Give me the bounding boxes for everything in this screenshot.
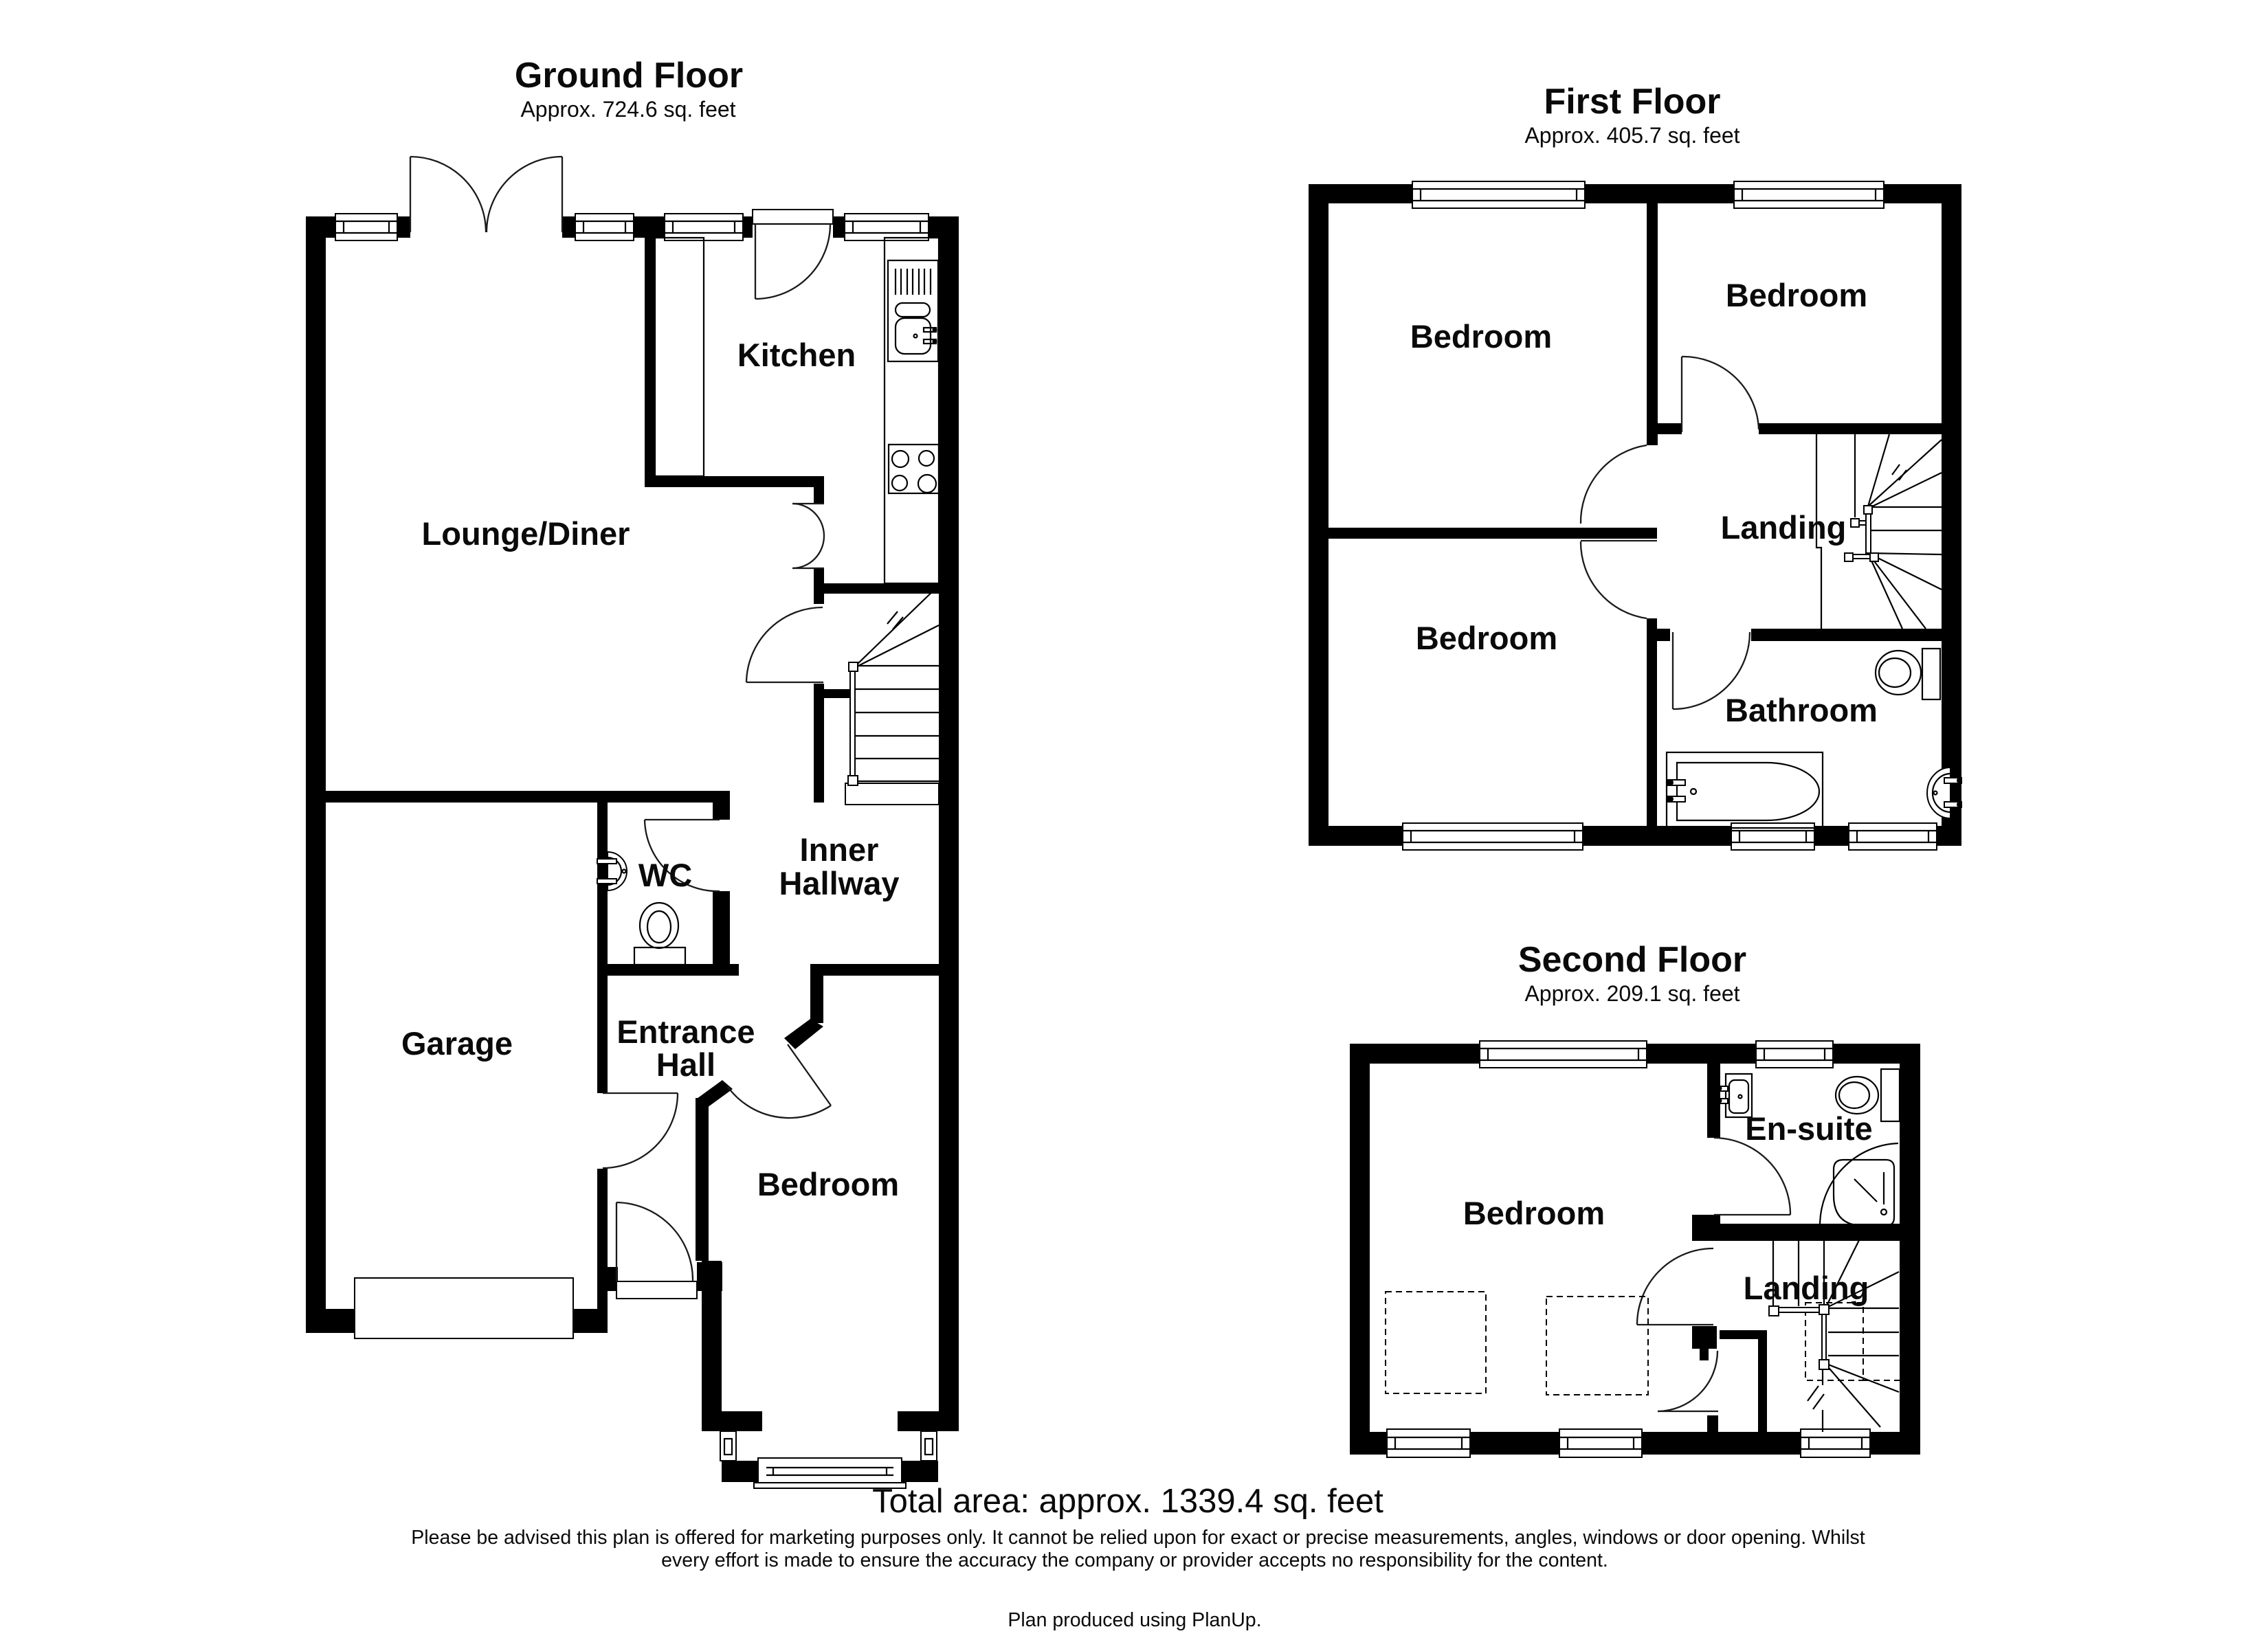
svg-text:Approx. 405.7 sq. feet: Approx. 405.7 sq. feet bbox=[1524, 123, 1739, 148]
svg-text:every effort is made to ensure: every effort is made to ensure the accur… bbox=[661, 1549, 1608, 1571]
svg-text:Landing: Landing bbox=[1721, 509, 1847, 546]
svg-text:Landing: Landing bbox=[1744, 1270, 1869, 1306]
svg-text:Bathroom: Bathroom bbox=[1725, 692, 1878, 728]
svg-text:Second Floor: Second Floor bbox=[1518, 940, 1746, 980]
svg-text:Inner: Inner bbox=[800, 831, 879, 868]
svg-text:Approx. 724.6 sq. feet: Approx. 724.6 sq. feet bbox=[520, 97, 735, 122]
svg-text:Hallway: Hallway bbox=[779, 865, 899, 901]
svg-text:En-suite: En-suite bbox=[1745, 1110, 1872, 1147]
svg-text:Bedroom: Bedroom bbox=[757, 1166, 899, 1202]
svg-text:Lounge/Diner: Lounge/Diner bbox=[422, 515, 630, 552]
svg-text:First Floor: First Floor bbox=[1544, 82, 1720, 122]
svg-text:Bedroom: Bedroom bbox=[1726, 277, 1867, 313]
svg-text:Hall: Hall bbox=[656, 1046, 715, 1083]
svg-text:WC: WC bbox=[638, 857, 692, 893]
svg-text:Please be advised this plan is: Please be advised this plan is offered f… bbox=[411, 1527, 1865, 1549]
svg-text:Bedroom: Bedroom bbox=[1416, 620, 1557, 656]
svg-text:Kitchen: Kitchen bbox=[737, 337, 856, 373]
svg-text:Entrance: Entrance bbox=[616, 1013, 755, 1050]
svg-text:Bedroom: Bedroom bbox=[1410, 318, 1552, 355]
svg-text:Ground Floor: Ground Floor bbox=[515, 56, 743, 96]
svg-text:Garage: Garage bbox=[401, 1025, 513, 1062]
svg-text:Approx. 209.1 sq. feet: Approx. 209.1 sq. feet bbox=[1524, 981, 1739, 1006]
svg-text:Plan produced using PlanUp.: Plan produced using PlanUp. bbox=[1008, 1609, 1261, 1631]
svg-text:Bedroom: Bedroom bbox=[1463, 1195, 1605, 1231]
svg-text:Total area: approx. 1339.4 sq.: Total area: approx. 1339.4 sq. feet bbox=[872, 1483, 1383, 1520]
